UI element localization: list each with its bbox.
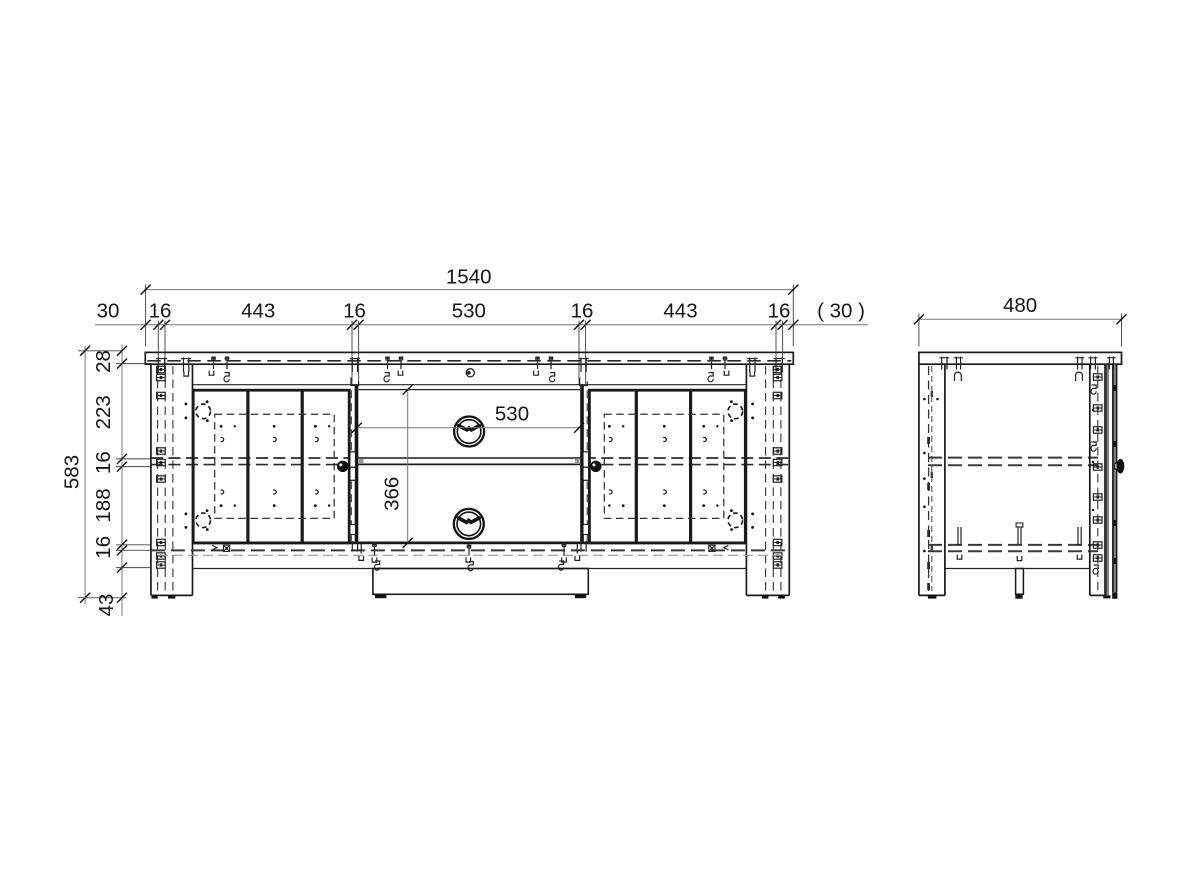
- svg-text:223: 223: [92, 395, 115, 429]
- svg-text:583: 583: [61, 455, 84, 489]
- svg-text:443: 443: [663, 300, 697, 323]
- svg-text:16: 16: [768, 300, 791, 323]
- svg-text:43: 43: [95, 594, 118, 617]
- svg-text:1540: 1540: [446, 266, 492, 289]
- svg-text:16: 16: [92, 536, 115, 559]
- svg-text:16: 16: [92, 451, 115, 474]
- svg-text:30: 30: [97, 300, 120, 323]
- svg-text:16: 16: [149, 300, 172, 323]
- svg-text:( 30 ): ( 30 ): [817, 300, 865, 323]
- svg-text:28: 28: [92, 350, 115, 373]
- svg-text:366: 366: [381, 477, 404, 511]
- svg-text:530: 530: [452, 300, 486, 323]
- svg-text:443: 443: [241, 300, 275, 323]
- svg-text:480: 480: [1003, 294, 1037, 317]
- svg-text:188: 188: [92, 488, 115, 522]
- svg-text:16: 16: [343, 300, 366, 323]
- svg-text:16: 16: [571, 300, 594, 323]
- svg-text:530: 530: [495, 402, 529, 425]
